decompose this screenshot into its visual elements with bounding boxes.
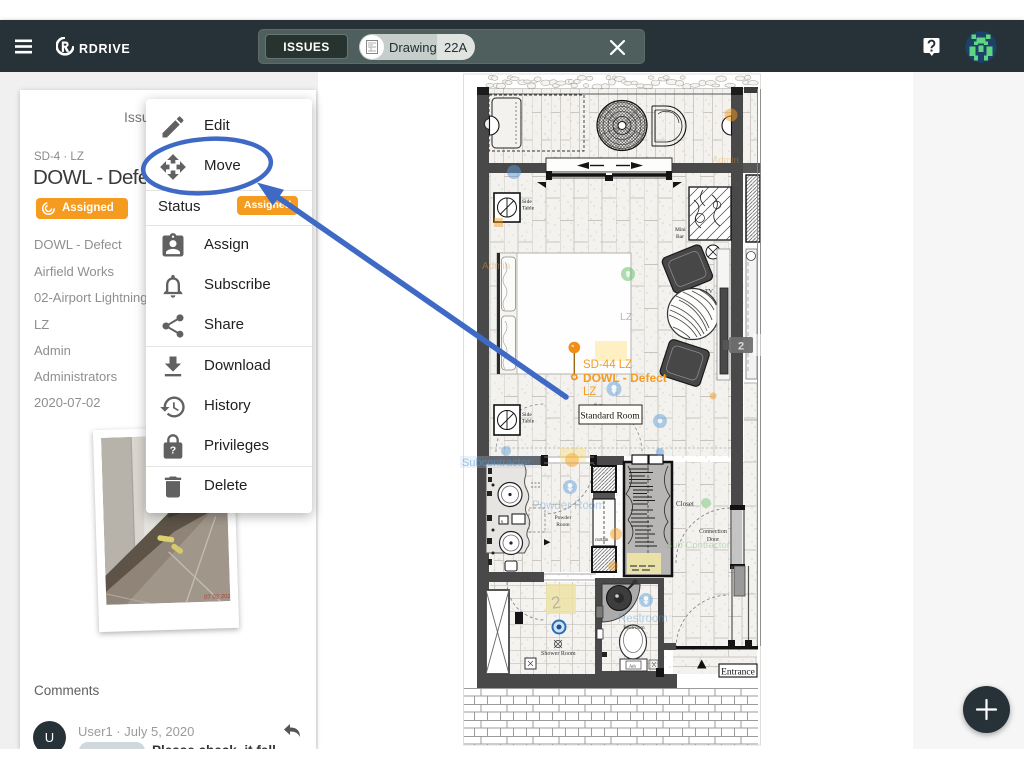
- svg-text:Ath: Ath: [629, 664, 637, 669]
- svg-text:Powder: Powder: [555, 515, 572, 521]
- svg-text:TV: TV: [705, 289, 714, 295]
- svg-text:Sub Contractor: Sub Contractor: [666, 540, 730, 551]
- svg-text:Side: Side: [522, 199, 532, 205]
- svg-text:curtain: curtain: [595, 538, 609, 543]
- svg-text:LZ: LZ: [620, 311, 633, 323]
- svg-text:07 02 2020: 07 02 2020: [204, 594, 230, 601]
- svg-text:Mini: Mini: [675, 227, 686, 233]
- svg-text:Entrance: Entrance: [721, 668, 755, 678]
- svg-text:Admin: Admin: [482, 261, 510, 272]
- svg-text:Restroom: Restroom: [623, 625, 645, 631]
- svg-text:Table: Table: [522, 419, 535, 425]
- svg-text:?: ?: [170, 444, 176, 456]
- svg-text:DOWL - Defect: DOWL - Defect: [583, 371, 667, 385]
- svg-text:Powder Room: Powder Room: [532, 500, 605, 512]
- svg-text:SD-44 LZ: SD-44 LZ: [583, 359, 632, 371]
- svg-text:Shower Room: Shower Room: [541, 651, 576, 657]
- svg-text:Bar: Bar: [676, 234, 684, 240]
- svg-text:2: 2: [738, 341, 744, 353]
- svg-text:Side: Side: [522, 412, 532, 418]
- svg-text:Table: Table: [522, 206, 535, 212]
- svg-text:Connection: Connection: [699, 529, 727, 535]
- svg-text:Standard Room: Standard Room: [580, 412, 640, 422]
- svg-text:Closet: Closet: [676, 500, 694, 508]
- svg-text:Admin: Admin: [712, 155, 739, 166]
- svg-text:Restroom: Restroom: [618, 613, 668, 625]
- svg-text:Subcontractor: Subcontractor: [462, 457, 531, 469]
- svg-text:LZ: LZ: [583, 386, 596, 398]
- svg-text:Room: Room: [556, 522, 570, 528]
